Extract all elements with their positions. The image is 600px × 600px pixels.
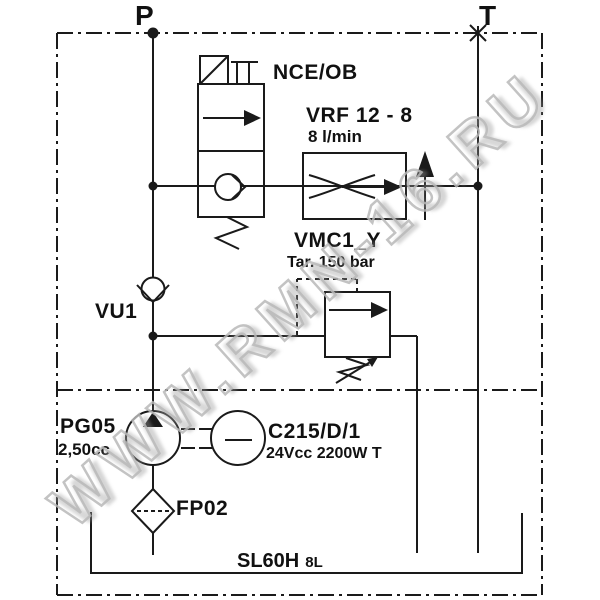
tank-label-group: SL60H 8L [237,551,323,571]
flow-arrow-head [244,110,261,126]
motor-spec: 24Vcc 2200W T [266,446,382,462]
bypass-arrow-head [416,151,434,177]
tank-label: SL60H [237,551,299,571]
pump-displacement: 2,50cc [58,441,110,458]
solenoid-valve-label: NCE/OB [273,62,358,83]
solenoid-diagonal [200,56,228,84]
hydraulic-schematic-page: P T NCE/OB VRF 12 - 8 8 l/min VMC1_Y Tar… [0,0,600,600]
relief-spring [339,358,367,380]
relief-valve-box [325,292,390,357]
pilot-dashed-line [297,279,357,336]
pump-symbol [126,411,180,465]
shaft-coupling-icon [181,429,212,448]
valve-spring [216,217,247,249]
relief-valve-label: VMC1_Y [294,230,381,251]
check-valve-label: VU1 [95,301,137,322]
junction-dot [149,182,158,191]
manual-override-icon [231,62,258,84]
flow-arrow-head [371,302,388,318]
junction-dot [149,332,158,341]
filter-label: FP02 [176,498,228,519]
port-p-label: P [135,2,154,30]
flow-regulator-flow: 8 l/min [308,128,362,145]
pump-label: PG05 [60,416,116,437]
motor-symbol [211,411,265,465]
motor-circle [211,411,265,465]
check-ball [142,278,165,301]
port-t-label: T [479,2,496,30]
schematic-canvas [0,0,600,600]
motor-label: C215/D/1 [268,421,361,442]
relief-discharge-line [390,336,417,553]
check-valve-symbol [137,278,169,303]
relief-valve-setting: Tar. 150 bar [287,255,375,271]
flow-regulator-label: VRF 12 - 8 [306,105,413,126]
flow-arrow-head [384,179,402,195]
pilot-check-ball [215,174,241,200]
tank-capacity: 8L [305,555,323,570]
relief-valve-symbol [297,279,390,383]
junction-dot [474,182,483,191]
solenoid-valve-symbol [198,56,264,249]
filter-symbol [132,465,174,555]
